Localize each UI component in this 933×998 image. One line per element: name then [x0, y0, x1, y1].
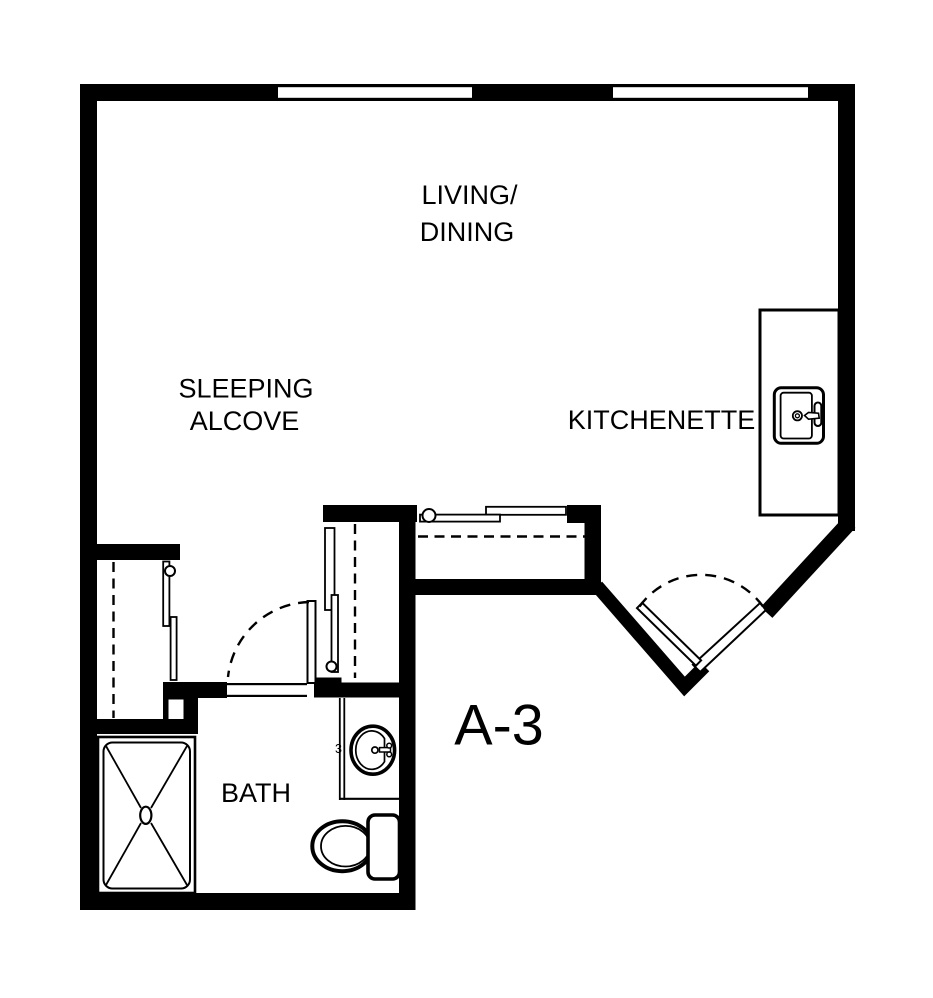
svg-text:LIVING/: LIVING/: [421, 180, 518, 210]
svg-text:KITCHENETTE: KITCHENETTE: [568, 405, 756, 435]
svg-text:ALCOVE: ALCOVE: [190, 406, 300, 436]
svg-text:A-3: A-3: [454, 694, 543, 758]
svg-text:BATH: BATH: [221, 778, 291, 808]
svg-text:3: 3: [335, 742, 342, 756]
svg-text:DINING: DINING: [420, 217, 515, 247]
svg-text:SLEEPING: SLEEPING: [178, 374, 313, 404]
